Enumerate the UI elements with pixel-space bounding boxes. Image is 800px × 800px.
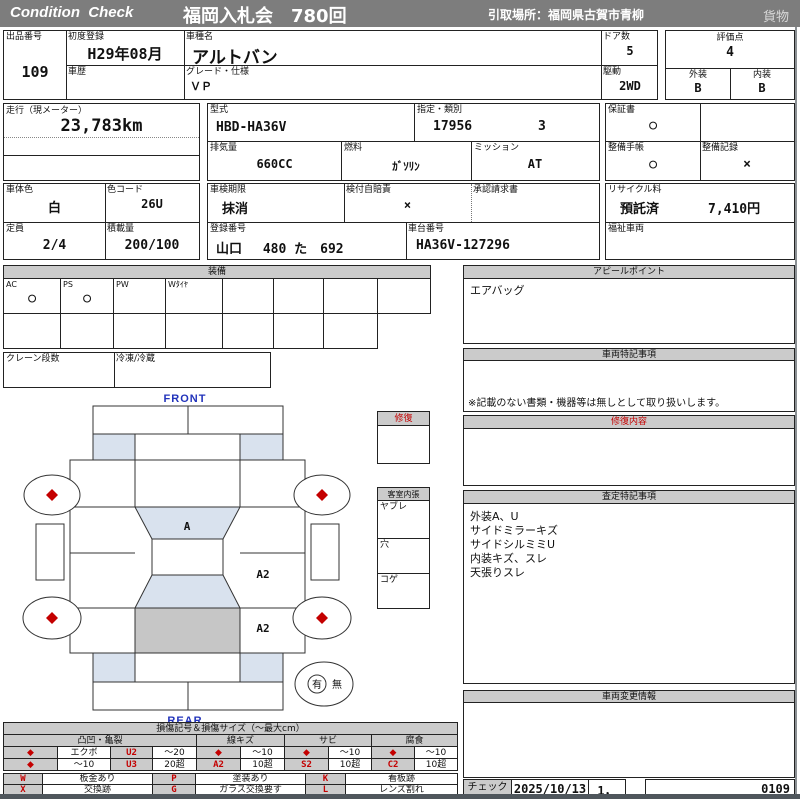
equipment-label: Wﾀｲﾔ [168,280,188,290]
appeal-text: エアバッグ [470,282,525,298]
maintenance-record-label: 整備記録 [702,143,738,153]
exterior-value: B [666,81,730,95]
recycle-status: 預託済 [620,198,659,217]
equipment-cell-empty [273,278,324,314]
fuel-label: 燃料 [344,143,362,153]
cabin-row-label: ヤブレ [380,502,407,512]
roof [152,539,223,575]
insurance-value: × [344,198,471,212]
registration-box: 車検期限 抹消 検付自賠責 × 承認請求書 登録番号 山口 480 た 692 … [207,183,600,260]
equipment-cell-empty [222,278,274,314]
displacement-value: 660CC [208,157,341,171]
model-name-label: 車種名 [186,32,213,42]
pickup-location: 引取場所：福岡県古賀市青柳 [488,6,644,23]
maintenance-book-label: 整備手帳 [608,143,644,153]
crane-label: クレーン段数 [6,354,60,364]
interior-value: B [730,81,794,95]
repair-box-header: 修復 [377,411,430,426]
legend-cell: 10超 [240,758,285,771]
equipment-cell-empty [323,313,378,349]
chassis-number-label: 車台番号 [408,224,444,234]
cabin-row-burn: コゲ [377,573,430,609]
warranty-label: 保証書 [608,105,635,115]
equipment-value: ○ [61,291,113,306]
brand-logo: Condition Check [10,4,133,21]
front-pillar-left [93,434,135,460]
mirror-left [36,524,64,580]
car-diagram: FRONT A A2 A2 [0,388,370,728]
crane-reefer-box: クレーン段数 冷凍/冷蔵 [3,352,271,388]
equipment-cell-ps: PS ○ [60,278,114,314]
recycle-label: リサイクル料 [608,185,662,195]
spare-tire-badge [295,662,353,706]
special-notes-text: ※記載のない書類・機器等は無しとして取り扱いします。 [468,394,725,409]
divider [4,155,199,156]
equipment-label: PW [116,280,129,290]
windshield-mark: A [184,520,191,533]
special-notes-body: ※記載のない書類・機器等は無しとして取り扱いします。 [463,360,795,412]
registration-number-label: 登録番号 [210,224,246,234]
rear-window [135,575,240,608]
capacity-label: 定員 [6,224,24,234]
model-code-label: 型式 [210,105,228,115]
equipment-cell-empty [222,313,274,349]
load-value: 200/100 [105,238,199,253]
insurance-label: 検付自賠責 [346,185,391,195]
color-code-label: 色コード [107,185,143,195]
score-value: 4 [666,45,794,60]
equipment-label: PS [63,280,73,290]
cabin-row-tear: ヤブレ [377,500,430,539]
lot-number-label: 出品番号 [6,32,42,42]
class-no-label: 指定・類別 [417,105,462,115]
divider [406,222,407,259]
legend-cell: 10超 [414,758,458,771]
history-label: 車歴 [68,67,86,77]
model-name-value: アルトバン [192,43,278,68]
divider [4,222,199,223]
capacity-value: 2/4 [4,238,105,253]
class-no-value-1: 17956 [433,119,472,134]
front-label: FRONT [164,393,207,405]
spare-yes-label: 有 [312,678,322,691]
equipment-cell-empty [113,313,166,349]
recycle-amount: 7,410円 [708,198,760,217]
divider [471,184,472,222]
rear-pillar-left [93,653,135,682]
approval-label: 承認請求書 [473,185,518,195]
transmission-label: ミッション [474,143,519,153]
doors-value: 5 [601,44,659,58]
mileage-value: 23,783km [4,116,199,136]
recycle-box: リサイクル料 預託済 7,410円 福祉車両 [605,183,795,260]
auction-sheet: Condition Check 福岡入札会 780回 引取場所：福岡県古賀市青柳… [0,0,800,800]
bottom-bar [0,794,800,799]
cargo-tag: 貨物 [763,6,789,25]
repair-box-body [377,425,430,464]
equipment-value: ○ [4,291,60,306]
equipment-cell-wtire: Wﾀｲﾔ [165,278,223,314]
equipment-cell-empty [3,313,61,349]
divider [606,222,794,223]
class-no-value-2: 3 [538,119,546,134]
color-code-value: 26U [105,197,199,211]
cabin-row-label: コゲ [380,575,398,585]
divider [208,141,599,142]
transmission-value: AT [471,157,599,171]
maintenance-record-value: × [700,157,794,172]
drive-label: 駆動 [603,67,621,77]
maintenance-book-value: ○ [606,157,700,172]
score-label: 評価点 [666,33,794,43]
legend-cell: ～10 [57,758,111,771]
color-capacity-box: 車体色 白 色コード 26U 定員 2/4 積載量 200/100 [3,183,200,260]
score-box: 評価点 4 外装 B 内装 B [665,30,795,100]
doors-label: ドア数 [603,32,630,42]
equipment-cell-empty [323,278,378,314]
cabin-header: 客室内張 [377,487,430,501]
equipment-cell-pw: PW [113,278,166,314]
spare-no-label: 無 [332,678,342,691]
reefer-label: 冷凍/冷蔵 [116,354,155,364]
load-label: 積載量 [107,224,134,234]
rear-pillar-right [240,653,283,682]
legend-cell: 20超 [152,758,197,771]
exterior-label: 外装 [666,70,730,80]
divider [208,222,599,223]
legend-cell: 10超 [328,758,372,771]
mileage-label: 走行（現メーター） [6,106,87,116]
welfare-label: 福祉車両 [608,224,644,234]
assessment-line: 天張りスレ [470,564,525,580]
equipment-header: 装備 [3,265,431,279]
inspection-value: 抹消 [222,198,248,217]
page-right-border [795,27,797,794]
interior-label: 内装 [730,70,794,80]
repair-detail-header: 修復内容 [463,415,795,429]
repair-detail-body [463,428,795,486]
inspection-label: 車検期限 [210,185,246,195]
panel-mark-a2-upper: A2 [256,568,269,581]
cabin-row-label: 穴 [380,540,389,550]
panel-mark-a2-lower: A2 [256,622,269,635]
auction-title: 福岡入札会 780回 [183,2,347,28]
registration-number-value: 山口 480 た 692 [216,238,344,257]
legend-cell: S2 [284,758,329,771]
appeal-header: アピールポイント [463,265,795,279]
model-code-value: HBD-HA36V [216,120,286,135]
equipment-cell-empty [165,313,223,349]
first-registration-value: H29年08月 [66,43,184,64]
front-pillar-right [240,434,283,460]
legend-cell: ◆ [3,758,58,771]
equipment-cell-empty [377,278,431,314]
assessment-body: 外装A、U サイドミラーキズ サイドシルミミU 内装キズ、スレ 天張りスレ [463,503,795,684]
drive-value: 2WD [601,79,659,93]
grade-label: グレード・仕様 [186,67,249,77]
legend-cell: C2 [371,758,415,771]
rear-gate [135,608,240,653]
grade-value: ＶＰ [190,78,212,94]
first-registration-label: 初度登録 [68,32,104,42]
cabin-row-hole: 穴 [377,538,430,574]
body-color-label: 車体色 [6,185,33,195]
displacement-label: 排気量 [210,143,237,153]
divider [4,137,199,138]
divider [66,65,657,66]
equipment-cell-ac: AC ○ [3,278,61,314]
mirror-right [311,524,339,580]
equipment-cell-empty [60,313,114,349]
body-color-value: 白 [4,197,105,216]
assessment-header: 査定特記事項 [463,490,795,504]
fuel-value: ｶﾞｿﾘﾝ [341,158,471,174]
vehicle-id-box: 出品番号 109 初度登録 H29年08月 車歴 車種名 アルトバン グレード・… [3,30,658,100]
equipment-label: AC [6,280,17,290]
warranty-value: ○ [606,118,700,133]
change-info-body [463,702,795,778]
legend-cell: U3 [110,758,153,771]
appeal-body: エアバッグ [463,278,795,344]
divider [114,353,115,387]
spec-box: 型式 HBD-HA36V 指定・類別 17956 3 排気量 660CC 燃料 … [207,103,600,181]
mileage-box: 走行（現メーター） 23,783km [3,103,200,181]
equipment-cell-empty [273,313,324,349]
header-bar: Condition Check 福岡入札会 780回 引取場所：福岡県古賀市青柳… [0,0,800,27]
legend-cell: A2 [196,758,241,771]
documents-box: 保証書 ○ 整備手帳 ○ 整備記録 × [605,103,795,181]
chassis-number-value: HA36V-127296 [416,238,510,253]
lot-number-value: 109 [4,63,66,81]
divider [414,104,415,141]
